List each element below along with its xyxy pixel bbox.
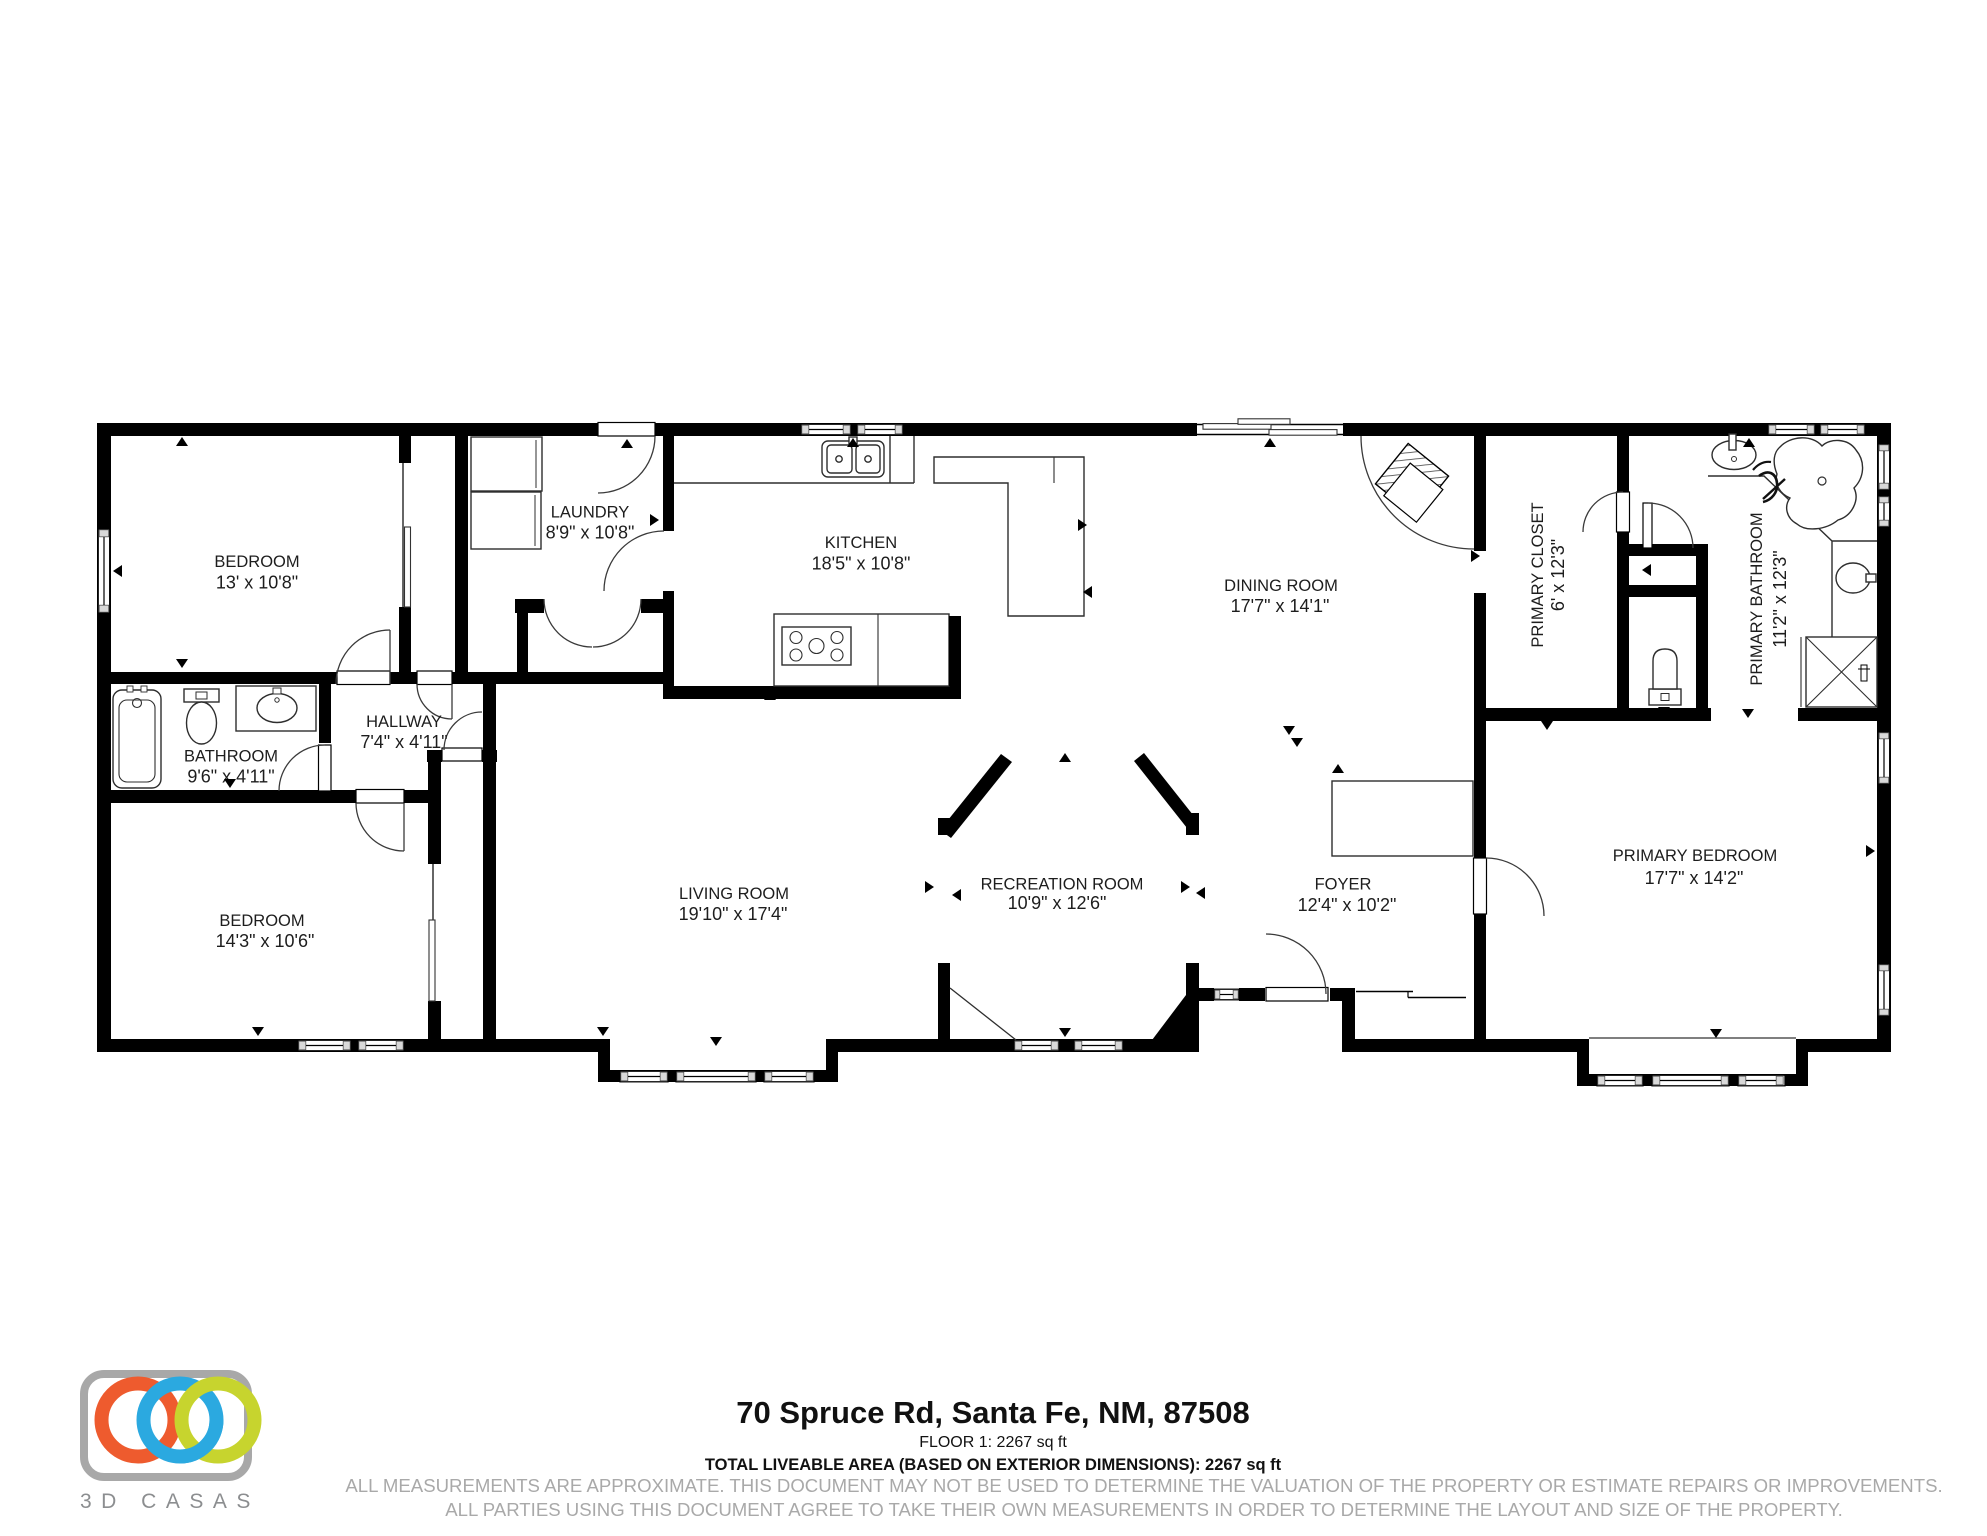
svg-text:LAUNDRY: LAUNDRY: [551, 504, 630, 522]
svg-text:DINING ROOM: DINING ROOM: [1224, 577, 1338, 595]
svg-text:PRIMARY CLOSET: PRIMARY CLOSET: [1529, 502, 1547, 647]
svg-text:17'7" x 14'1": 17'7" x 14'1": [1231, 596, 1330, 616]
svg-text:14'3" x 10'6": 14'3" x 10'6": [216, 931, 315, 951]
svg-text:HALLWAY: HALLWAY: [366, 713, 442, 731]
svg-text:11'2" x 12'3": 11'2" x 12'3": [1770, 550, 1790, 647]
svg-text:12'4" x 10'2": 12'4" x 10'2": [1298, 895, 1397, 915]
svg-text:BATHROOM: BATHROOM: [184, 748, 278, 766]
svg-text:FOYER: FOYER: [1315, 876, 1372, 894]
svg-text:PRIMARY BATHROOM: PRIMARY BATHROOM: [1748, 512, 1766, 685]
svg-text:8'9" x 10'8": 8'9" x 10'8": [546, 523, 635, 543]
svg-text:19'10" x 17'4": 19'10" x 17'4": [679, 904, 788, 924]
svg-text:PRIMARY BEDROOM: PRIMARY BEDROOM: [1613, 847, 1777, 865]
svg-text:RECREATION ROOM: RECREATION ROOM: [981, 876, 1144, 894]
svg-text:13' x 10'8": 13' x 10'8": [216, 573, 298, 593]
svg-text:18'5" x 10'8": 18'5" x 10'8": [812, 554, 911, 574]
svg-text:LIVING ROOM: LIVING ROOM: [679, 885, 789, 903]
svg-text:TOTAL LIVEABLE AREA (BASED ON: TOTAL LIVEABLE AREA (BASED ON EXTERIOR D…: [705, 1456, 1282, 1474]
svg-text:7'4" x 4'11": 7'4" x 4'11": [360, 732, 447, 752]
svg-text:17'7" x 14'2": 17'7" x 14'2": [1645, 868, 1744, 888]
svg-text:FLOOR 1: 2267 sq ft: FLOOR 1: 2267 sq ft: [919, 1434, 1067, 1451]
svg-text:BEDROOM: BEDROOM: [219, 912, 304, 930]
svg-text:6' x 12'3": 6' x 12'3": [1548, 539, 1568, 611]
svg-text:3D CASAS: 3D CASAS: [80, 1490, 260, 1513]
svg-text:10'9" x 12'6": 10'9" x 12'6": [1008, 893, 1107, 913]
svg-text:70 Spruce Rd, Santa Fe, NM, 87: 70 Spruce Rd, Santa Fe, NM, 87508: [736, 1395, 1249, 1430]
svg-text:ALL MEASUREMENTS ARE APPROXIMA: ALL MEASUREMENTS ARE APPROXIMATE. THIS D…: [345, 1475, 1942, 1496]
svg-text:KITCHEN: KITCHEN: [825, 534, 897, 552]
svg-text:ALL PARTIES USING THIS DOCUMEN: ALL PARTIES USING THIS DOCUMENT AGREE TO…: [445, 1499, 1843, 1520]
svg-text:BEDROOM: BEDROOM: [214, 553, 299, 571]
